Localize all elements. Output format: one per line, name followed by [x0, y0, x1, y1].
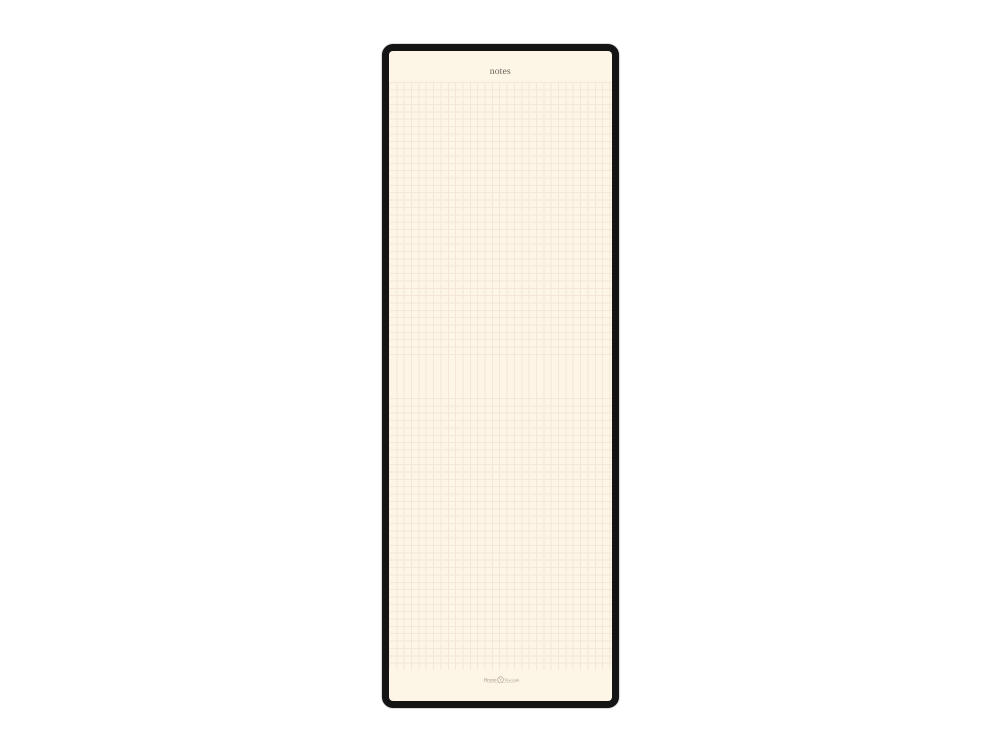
svg-text:V: V [499, 677, 502, 682]
svg-text:Visconti: Visconti [504, 677, 520, 682]
